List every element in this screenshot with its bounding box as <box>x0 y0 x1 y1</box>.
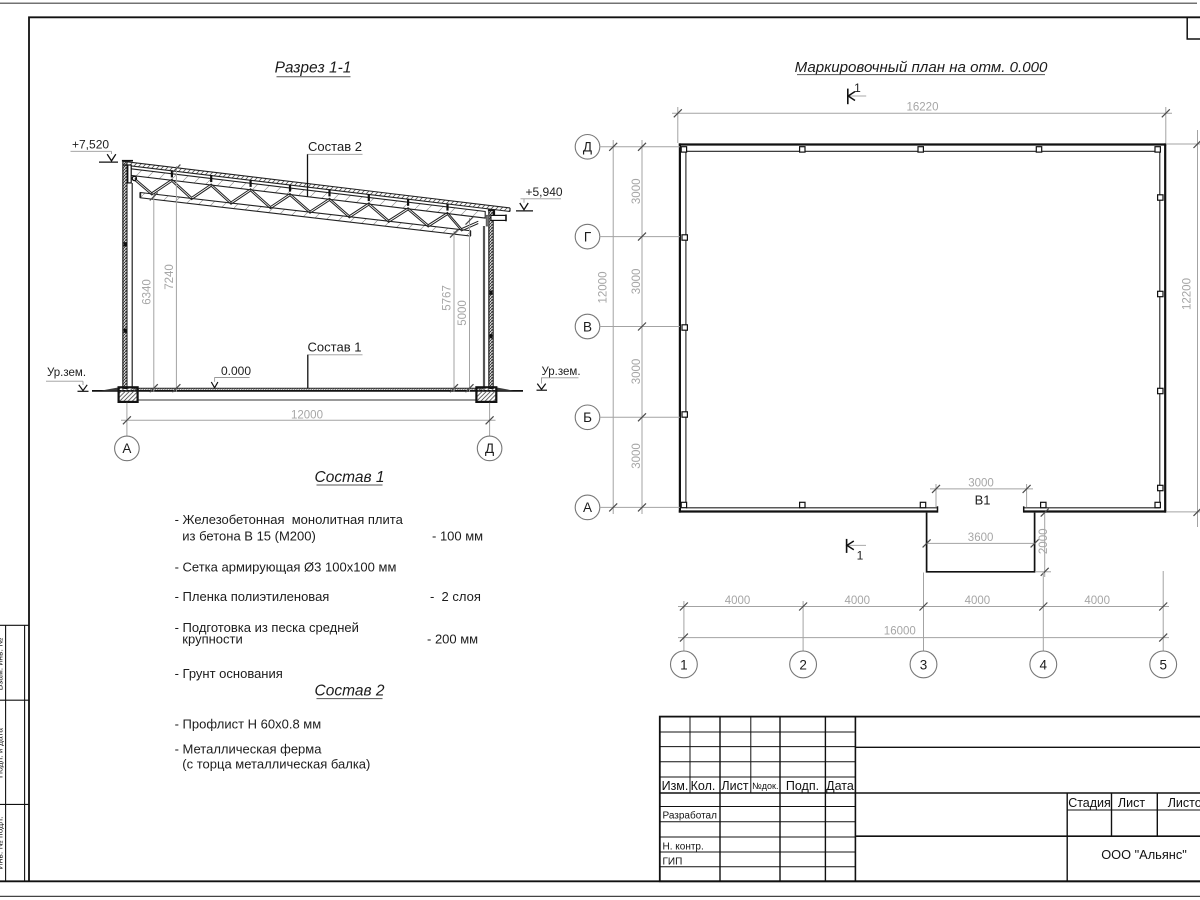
svg-text:Изм.: Изм. <box>662 779 689 793</box>
svg-text:6340: 6340 <box>142 279 154 305</box>
svg-text:Разрез 1-1: Разрез 1-1 <box>275 60 352 77</box>
svg-text:Состав 2: Состав 2 <box>308 139 362 154</box>
svg-text:Дата: Дата <box>826 779 854 793</box>
svg-text:Состав 2: Состав 2 <box>315 683 385 700</box>
svg-text:3: 3 <box>920 657 928 672</box>
svg-text:- Металлическая ферма: - Металлическая ферма <box>175 742 323 757</box>
svg-text:1: 1 <box>857 548 864 562</box>
svg-text:Стадия: Стадия <box>1068 796 1111 810</box>
svg-text:Лист: Лист <box>1118 796 1145 810</box>
svg-text:- Железобетонная монолитная п: - Железобетонная монолитная плита <box>175 512 404 527</box>
svg-text:Ур.зем.: Ур.зем. <box>47 367 86 379</box>
svg-text:Разработал: Разработал <box>663 810 718 822</box>
svg-text:4000: 4000 <box>725 595 751 607</box>
svg-text:Состав 1: Состав 1 <box>315 469 385 486</box>
svg-text:12200: 12200 <box>1182 278 1194 310</box>
svg-text:3000: 3000 <box>631 359 643 385</box>
svg-text:0.000: 0.000 <box>221 364 251 378</box>
svg-text:Д: Д <box>583 140 592 155</box>
svg-text:(с торца металлическая балка): (с торца металлическая балка) <box>182 757 370 772</box>
svg-text:крупности: крупности <box>182 632 242 647</box>
svg-text:12000: 12000 <box>598 272 610 304</box>
svg-text:ГИП: ГИП <box>663 857 683 868</box>
svg-text:- Грунт основания: - Грунт основания <box>175 666 283 681</box>
svg-text:Подп. и дата: Подп. и дата <box>0 728 5 778</box>
svg-text:Б: Б <box>583 410 592 425</box>
svg-text:А: А <box>583 500 592 515</box>
svg-text:1: 1 <box>854 81 861 95</box>
svg-text:16220: 16220 <box>907 101 939 113</box>
svg-text:Ур.зем.: Ур.зем. <box>542 366 581 378</box>
svg-text:2000: 2000 <box>1038 529 1050 555</box>
svg-text:- 100 мм: - 100 мм <box>432 529 483 544</box>
svg-text:А: А <box>122 441 131 456</box>
svg-text:- Сетка армирующая Ø3 100х100: - Сетка армирующая Ø3 100х100 мм <box>175 560 397 575</box>
svg-text:Состав 1: Состав 1 <box>308 340 362 355</box>
svg-text:7240: 7240 <box>164 264 176 290</box>
svg-text:Листов: Листов <box>1168 796 1200 810</box>
svg-text:Лист: Лист <box>721 779 748 793</box>
svg-text:Г: Г <box>584 229 592 244</box>
svg-text:1: 1 <box>680 657 688 672</box>
svg-text:12000: 12000 <box>291 409 323 421</box>
svg-text:+5,940: +5,940 <box>526 185 563 199</box>
svg-text:Взам. инв. №: Взам. инв. № <box>0 638 5 691</box>
svg-text:+7,520: +7,520 <box>72 138 109 152</box>
svg-text:из бетона В 15 (М200): из бетона В 15 (М200) <box>182 529 316 544</box>
svg-text:- 2 слоя: - 2 слоя <box>430 589 481 604</box>
svg-text:4: 4 <box>1040 657 1048 672</box>
svg-text:5767: 5767 <box>441 285 453 311</box>
svg-text:3600: 3600 <box>968 532 994 544</box>
svg-text:Маркировочный план на отм. 0.0: Маркировочный план на отм. 0.000 <box>795 59 1048 76</box>
svg-text:4000: 4000 <box>845 595 871 607</box>
svg-text:3000: 3000 <box>631 269 643 295</box>
svg-text:3000: 3000 <box>968 478 994 490</box>
svg-text:3000: 3000 <box>631 443 643 469</box>
svg-text:№док.: №док. <box>752 781 778 791</box>
svg-text:В1: В1 <box>975 492 991 507</box>
svg-text:Инв. № подл.: Инв. № подл. <box>0 817 5 870</box>
svg-text:2: 2 <box>799 657 807 672</box>
svg-text:Д: Д <box>485 441 494 456</box>
svg-text:3000: 3000 <box>631 179 643 205</box>
svg-text:4000: 4000 <box>1084 595 1110 607</box>
svg-text:- Профлист Н 60х0.8 мм: - Профлист Н 60х0.8 мм <box>175 717 322 732</box>
svg-text:5000: 5000 <box>457 300 469 326</box>
svg-text:ООО "Альянс": ООО "Альянс" <box>1101 847 1187 862</box>
svg-text:- Пленка полиэтиленовая: - Пленка полиэтиленовая <box>175 589 330 604</box>
svg-text:Кол.: Кол. <box>691 779 716 793</box>
svg-text:4000: 4000 <box>965 595 991 607</box>
svg-text:- 200 мм: - 200 мм <box>427 632 478 647</box>
svg-text:16000: 16000 <box>884 625 916 637</box>
svg-text:Подп.: Подп. <box>786 779 819 793</box>
svg-text:Н. контр.: Н. контр. <box>663 842 704 853</box>
svg-text:В: В <box>583 319 592 334</box>
svg-text:5: 5 <box>1159 657 1167 672</box>
